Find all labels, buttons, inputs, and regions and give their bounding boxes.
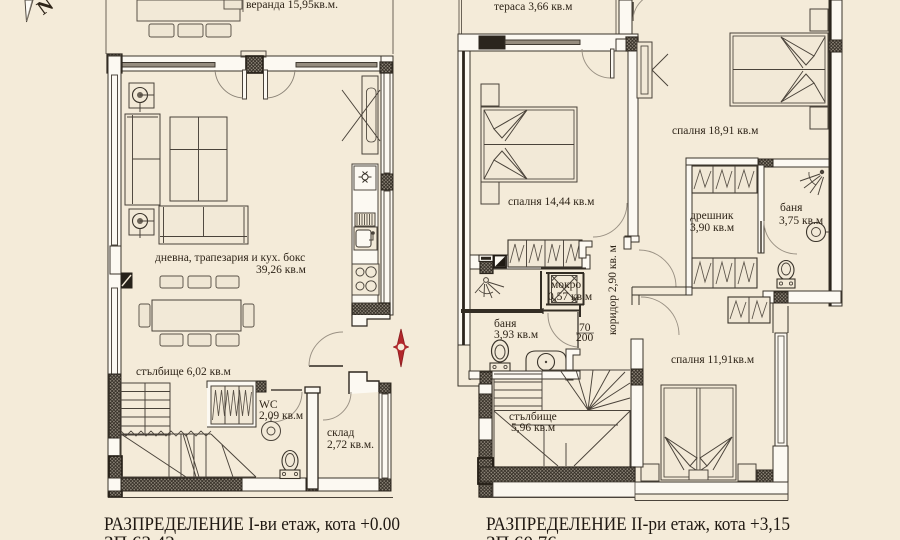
svg-text:ЗП 63,42: ЗП 63,42	[104, 533, 175, 540]
svg-text:спалня 14,44 кв.м: спалня 14,44 кв.м	[508, 196, 595, 208]
svg-text:РАЗПРЕДЕЛЕНИЕ I-ви етаж, кота: РАЗПРЕДЕЛЕНИЕ I-ви етаж, кота +0.00	[104, 514, 400, 535]
svg-text:ЗП 60,76: ЗП 60,76	[486, 533, 557, 540]
svg-text:39,26 кв.м: 39,26 кв.м	[256, 264, 307, 276]
svg-text:веранда 15,95кв.м.: веранда 15,95кв.м.	[246, 0, 338, 11]
svg-text:дневна, трапезария и кух. бокс: дневна, трапезария и кух. бокс	[155, 252, 305, 264]
svg-text:3,90 кв.м: 3,90 кв.м	[690, 222, 735, 234]
svg-text:РАЗПРЕДЕЛЕНИЕ II-ри етаж, кота: РАЗПРЕДЕЛЕНИЕ II-ри етаж, кота +3,15	[486, 514, 790, 535]
svg-text:200: 200	[576, 332, 594, 344]
svg-text:дрешник: дрешник	[690, 210, 734, 222]
svg-text:спалня 11,91кв.м: спалня 11,91кв.м	[671, 354, 755, 366]
svg-text:2,72 кв.м.: 2,72 кв.м.	[327, 439, 374, 451]
svg-text:5,96 кв.м: 5,96 кв.м	[511, 422, 556, 434]
svg-text:стълбище 6,02 кв.м: стълбище 6,02 кв.м	[136, 366, 232, 378]
svg-text:0,57 кв.м: 0,57 кв.м	[548, 291, 593, 303]
svg-text:3,93 кв.м: 3,93 кв.м	[494, 329, 539, 341]
svg-text:баня: баня	[780, 202, 803, 214]
svg-text:тераса 3,66 кв.м: тераса 3,66 кв.м	[494, 1, 573, 13]
svg-text:спалня 18,91 кв.м: спалня 18,91 кв.м	[672, 125, 759, 137]
svg-text:мокро: мокро	[551, 279, 581, 291]
svg-text:коридор 2,90 кв. м: коридор 2,90 кв. м	[607, 244, 619, 335]
svg-text:3,75 кв.м: 3,75 кв.м	[779, 215, 824, 227]
svg-text:склад: склад	[327, 427, 355, 439]
svg-text:2,09 кв.м: 2,09 кв.м	[259, 410, 304, 422]
